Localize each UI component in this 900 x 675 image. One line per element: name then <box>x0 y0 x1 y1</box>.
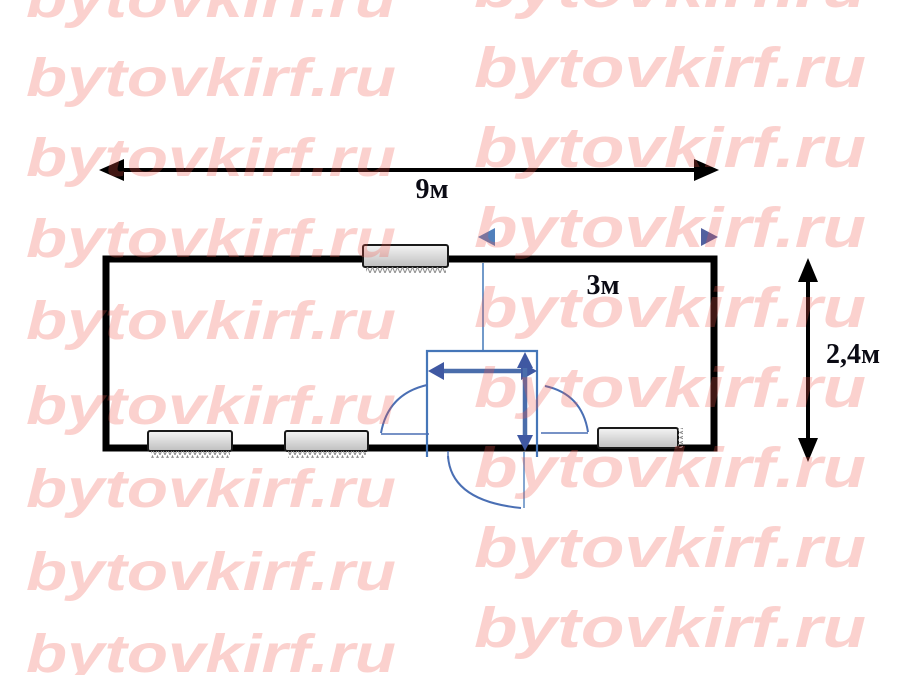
door-swing-left <box>381 385 429 434</box>
window-hatch <box>151 451 230 458</box>
arrow-up-icon <box>798 258 818 282</box>
dimension-arrow-width <box>99 159 719 181</box>
window-glass <box>148 431 232 451</box>
door-swing-arc <box>448 456 521 508</box>
dimension-arrow-room <box>478 228 718 246</box>
building-outline <box>106 259 714 448</box>
door-swing-right <box>541 386 588 433</box>
window-glass <box>598 428 678 448</box>
door-swing-arc <box>545 386 588 432</box>
floor-plan-drawing <box>0 0 900 675</box>
arrow-up-icon <box>517 352 533 368</box>
floor-plan-page: bytovkirf.rubytovkirf.rubytovkirf.rubyto… <box>0 0 900 675</box>
arrow-down-icon <box>798 438 818 462</box>
window-bottom-1 <box>148 431 232 458</box>
arrow-right-icon <box>701 228 718 246</box>
arrow-right-icon <box>694 159 719 181</box>
arrow-left-icon <box>99 159 124 181</box>
window-hatch <box>288 451 366 458</box>
window-top <box>363 245 448 273</box>
door-swing-bottom <box>448 451 524 508</box>
door-swing-arc <box>381 385 427 433</box>
window-glass <box>363 245 448 267</box>
window-bottom-3 <box>598 428 683 448</box>
window-hatch <box>366 267 446 273</box>
door-height-arrow <box>517 352 533 451</box>
dimension-arrow-height <box>798 258 818 462</box>
arrow-left-icon <box>428 362 444 380</box>
window-hatch <box>678 428 683 448</box>
arrow-left-icon <box>478 228 495 246</box>
window-bottom-2 <box>285 431 368 458</box>
window-glass <box>285 431 368 451</box>
